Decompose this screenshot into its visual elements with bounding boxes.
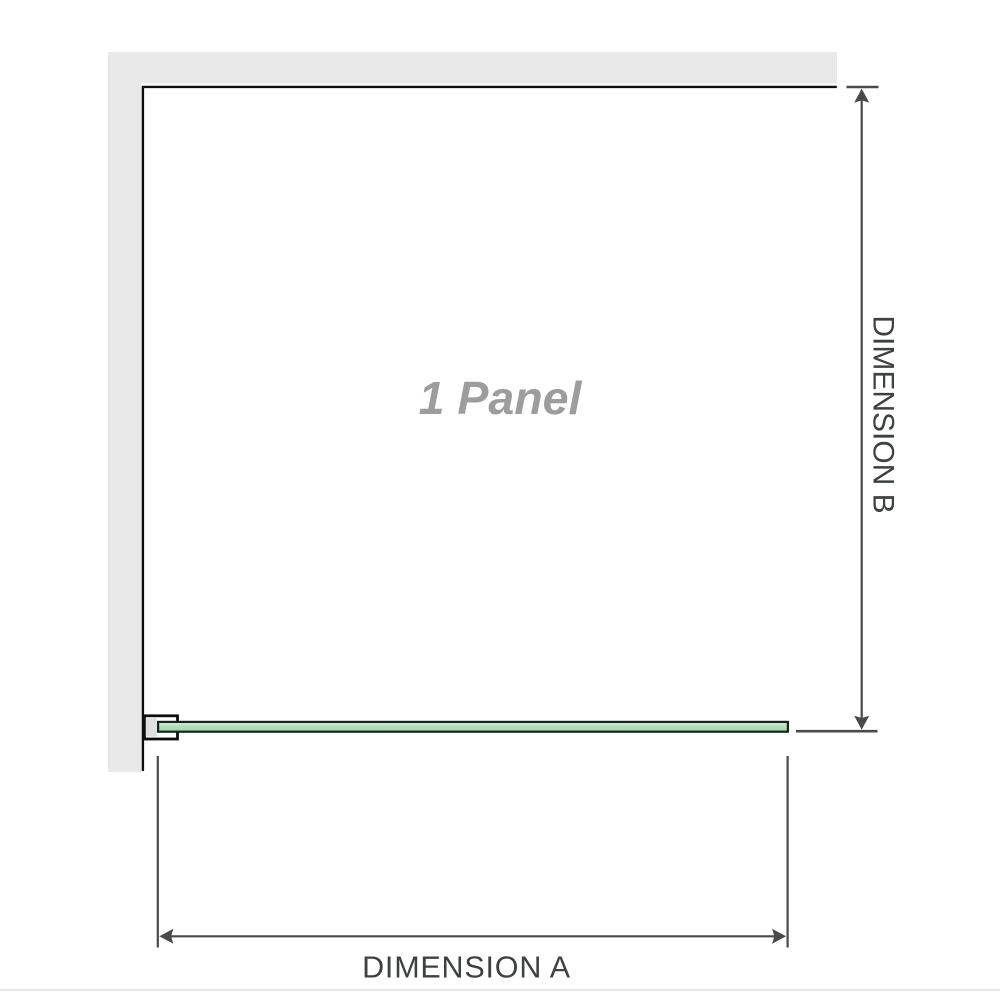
svg-text:DIMENSION B: DIMENSION B [867, 315, 900, 513]
svg-text:DIMENSION A: DIMENSION A [362, 951, 571, 985]
svg-text:1 Panel: 1 Panel [419, 372, 583, 424]
